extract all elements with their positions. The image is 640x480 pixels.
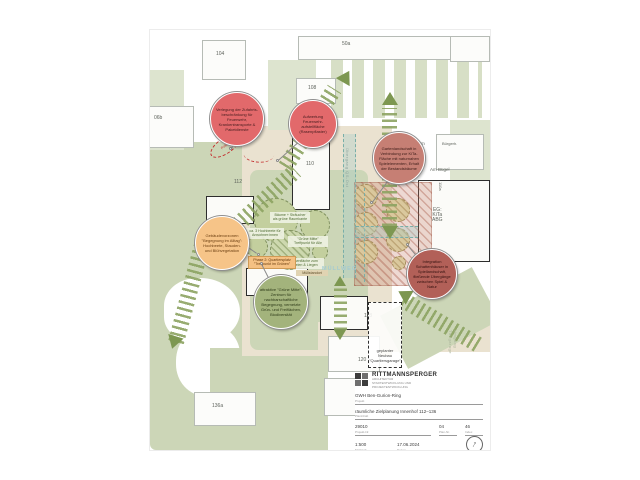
note-gruene-mitte: "Grüne Mitte" Treffpunkt für Alle [288,236,328,247]
building-label: 136a [212,404,223,409]
index-number: 46 [465,424,470,429]
bubble-text: Integration Schattenhäuser in Spiellands… [412,259,452,289]
date-label: Datum [397,448,441,450]
leader-dot [406,243,409,246]
annotation-bubble-gruene-mitte: attraktive "Grüne Mitte": Zentrum für na… [254,275,308,329]
index-label: Index [465,430,483,434]
bubble-text: Gartenlandschaft in Verbindung zur KiTa-… [378,146,420,171]
note-phase: Phase 2: Quartiersplatz "Treffpunkt im G… [248,256,296,269]
annotation-bubble-schattenhaeuser: Integration Schattenhäuser in Spiellands… [407,249,457,299]
firm-logo [355,373,369,386]
north-arrow-icon: ↑ [466,436,483,450]
building-label: 104 [216,52,224,57]
project-label: Projekt [355,399,483,403]
content-label: Planinhalt [355,414,483,418]
annotation-bubble-feuerwehr: Aufwertung Feuerwehr­aufstellfläche (Ras… [289,100,337,148]
tree [392,256,406,270]
uebergang-label: Übergang QS-Ost [345,148,350,188]
building-label: 112 [234,180,242,185]
building-topright [450,36,490,62]
bubble-text: Gebäudevorzonen "Begegnung im Alltag": H… [200,233,244,253]
kita-label: EG: KiTa ABG [432,208,443,223]
plan-sheet: 104 06b 50a 108 Bürgerh. 110 112 114 116… [150,30,490,450]
plan-screenshot: 104 06b 50a 108 Bürgerh. 110 112 114 116… [0,0,640,480]
scale-label: Maßstab [355,448,389,450]
leader-dot [370,201,373,204]
building-label: 06b [154,116,162,121]
note-beds: ca. 3 Hochbeete für Anwohner:innen [246,228,284,239]
annotation-bubble-vorzonen: Gebäudevorzonen "Begegnung im Alltag": H… [195,216,249,270]
firm-sub3: PROJEKTENTWICKLUNG [372,386,437,390]
am-buegel-label: Am Bügel [430,168,450,173]
tiefgarage-label: Umgang Tiefgarage [448,330,458,362]
street-label: MÜLLWEG [322,266,357,272]
scale-value: 1:500 [355,442,366,447]
leader-dot [276,159,279,162]
project-name: GWH Ben-Gurion-Ring [355,393,401,398]
title-block: RITTMANNSPERGER ARCHITEKTUR STADTENTWICK… [355,372,483,446]
project-number: 29010 [355,424,368,429]
building-label: 120 [358,358,366,363]
building-06b [150,106,194,148]
leader-dot [229,147,232,150]
plan-content: räumliche Zielplanung Innenhof 112–136 [355,409,436,414]
plan-number: 04 [439,424,444,429]
building-label: 108 [308,86,316,91]
tree [354,184,378,208]
leader-dot [260,262,263,265]
arrow-down-icon [382,226,398,239]
arrow-up-icon [382,92,398,105]
building-50a [298,36,462,60]
building-136a [194,392,256,426]
bubble-text: attraktive "Grüne Mitte": Zentrum für na… [259,287,303,317]
annotation-bubble-kita-garten: Gartenlandschaft in Verbindung zur KiTa-… [373,132,425,184]
date-value: 17.06.2024 [397,442,420,447]
building-buergerhaus [436,134,484,170]
building-104 [202,40,246,80]
annotation-bubble-zufahrt: Verlegung der Zufahrts­beschränkung für … [210,92,264,146]
building-label: 50a [342,42,350,47]
proj-no-label: Projekt-Nr. [355,430,431,434]
note-trees: Bäume + Sträucher als grüne Raumkante [270,212,310,223]
planned-building: geplanter Neubau "Quartiersgarage" [368,302,402,368]
building-label: 110a [438,182,442,191]
arrow-up-icon [334,276,346,286]
arrow-down-icon [334,330,346,340]
plan-no-label: Plan-Nr. [439,430,457,434]
building-label: Bürgerh. [442,142,457,146]
building-label: 110 [306,162,314,167]
promenade-band [334,288,347,330]
leader-dot [257,253,260,256]
bubble-text: Aufwertung Feuerwehr­aufstellfläche (Ras… [294,114,332,134]
tree [354,240,378,264]
bubble-text: Verlegung der Zufahrts­beschränkung für … [215,107,259,132]
